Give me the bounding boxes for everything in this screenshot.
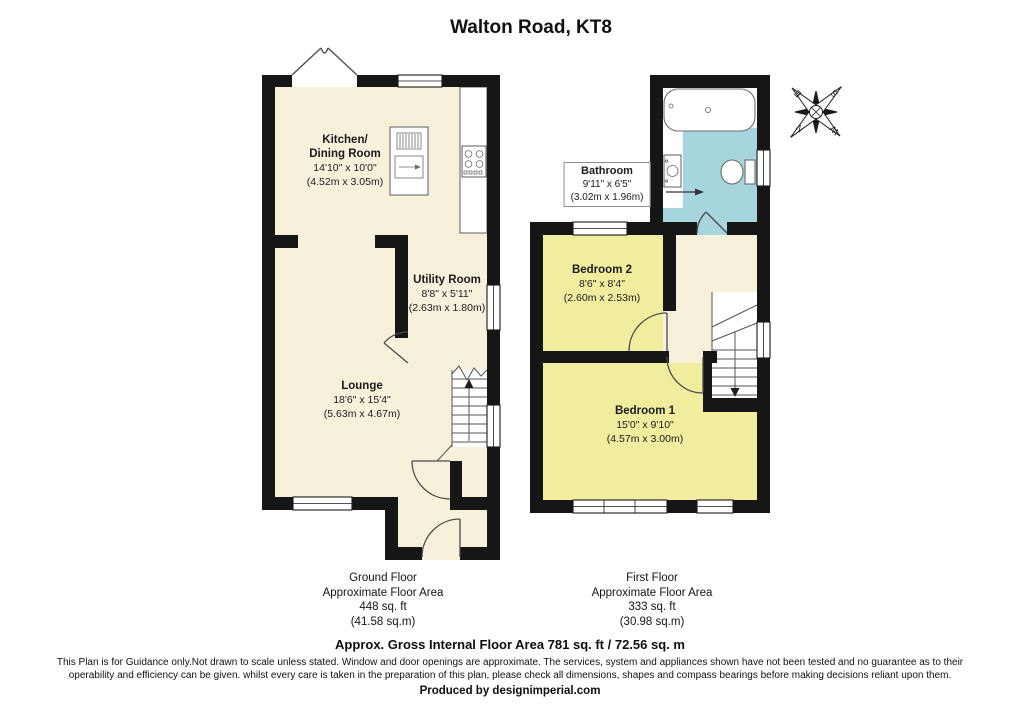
fridge-icon: [390, 127, 428, 195]
room-dims-ft: 8'6" x 8'4": [564, 277, 640, 291]
disclaimer-line-1: This Plan is for Guidance only.Not drawn…: [57, 657, 963, 668]
room-name: Kitchen/: [307, 133, 383, 147]
room-dims-ft: 18'6" x 15'4": [324, 393, 400, 407]
floor-area-ft: 448 sq. ft: [323, 600, 444, 615]
toilet-icon: [721, 160, 755, 184]
room-dims-ft: 14'10" x 10'0": [307, 161, 383, 175]
floor-area-m: (30.98 sq.m): [592, 615, 713, 630]
floor-area-label: Approximate Floor Area: [323, 586, 444, 601]
room-name: Dining Room: [307, 147, 383, 161]
bathroom-label-box: Bathroom 9'11" x 6'5" (3.02m x 1.96m): [564, 162, 651, 207]
compass-rose-icon: N E S W: [767, 63, 866, 162]
room-name: Utility Room: [409, 273, 485, 287]
room-dims-m: (2.60m x 2.53m): [564, 291, 640, 305]
room-label-lounge: Lounge 18'6" x 15'4" (5.63m x 4.67m): [324, 379, 400, 421]
room-dims-m: (5.63m x 4.67m): [324, 407, 400, 421]
room-dims-ft: 15'0" x 9'10": [607, 418, 683, 432]
floorplan-page: Walton Road, KT8: [0, 0, 1020, 720]
room-label-kitchen: Kitchen/ Dining Room 14'10" x 10'0" (4.5…: [307, 133, 383, 189]
room-label-utility: Utility Room 8'8" x 5'11" (2.63m x 1.80m…: [409, 273, 485, 315]
bathtub-icon: [664, 89, 755, 131]
room-label-bathroom: Bathroom 9'11" x 6'5" (3.02m x 1.96m): [564, 162, 651, 207]
first-staircase: [712, 292, 757, 398]
total-floor-area: Approx. Gross Internal Floor Area 781 sq…: [335, 637, 685, 652]
floor-area-ft: 333 sq. ft: [592, 600, 713, 615]
room-name: Bedroom 1: [607, 404, 683, 418]
floor-area-m: (41.58 sq.m): [323, 615, 444, 630]
floorplan-drawing: N E S W: [0, 0, 1020, 720]
room-name: Bathroom: [571, 165, 644, 178]
floor-name: First Floor: [592, 571, 713, 586]
disclaimer-line-2: operability and efficiency can be given.…: [69, 670, 952, 681]
room-dims-ft: 8'8" x 5'11": [409, 287, 485, 301]
floor-name: Ground Floor: [323, 571, 444, 586]
first-floor-caption: First Floor Approximate Floor Area 333 s…: [592, 571, 713, 629]
room-dims-m: (4.57m x 3.00m): [607, 432, 683, 446]
hob-icon: [462, 146, 486, 177]
room-dims-m: (3.02m x 1.96m): [571, 191, 644, 204]
ground-floor-caption: Ground Floor Approximate Floor Area 448 …: [323, 571, 444, 629]
room-name: Bedroom 2: [564, 263, 640, 277]
room-dims-ft: 9'11" x 6'5": [571, 178, 644, 191]
room-name: Lounge: [324, 379, 400, 393]
room-label-bedroom1: Bedroom 1 15'0" x 9'10" (4.57m x 3.00m): [607, 404, 683, 446]
produced-by-credit: Produced by designimperial.com: [420, 685, 601, 697]
sink-icon: [664, 155, 681, 187]
room-dims-m: (4.52m x 3.05m): [307, 175, 383, 189]
room-label-bedroom2: Bedroom 2 8'6" x 8'4" (2.60m x 2.53m): [564, 263, 640, 305]
room-dims-m: (2.63m x 1.80m): [409, 301, 485, 315]
floor-area-label: Approximate Floor Area: [592, 586, 713, 601]
